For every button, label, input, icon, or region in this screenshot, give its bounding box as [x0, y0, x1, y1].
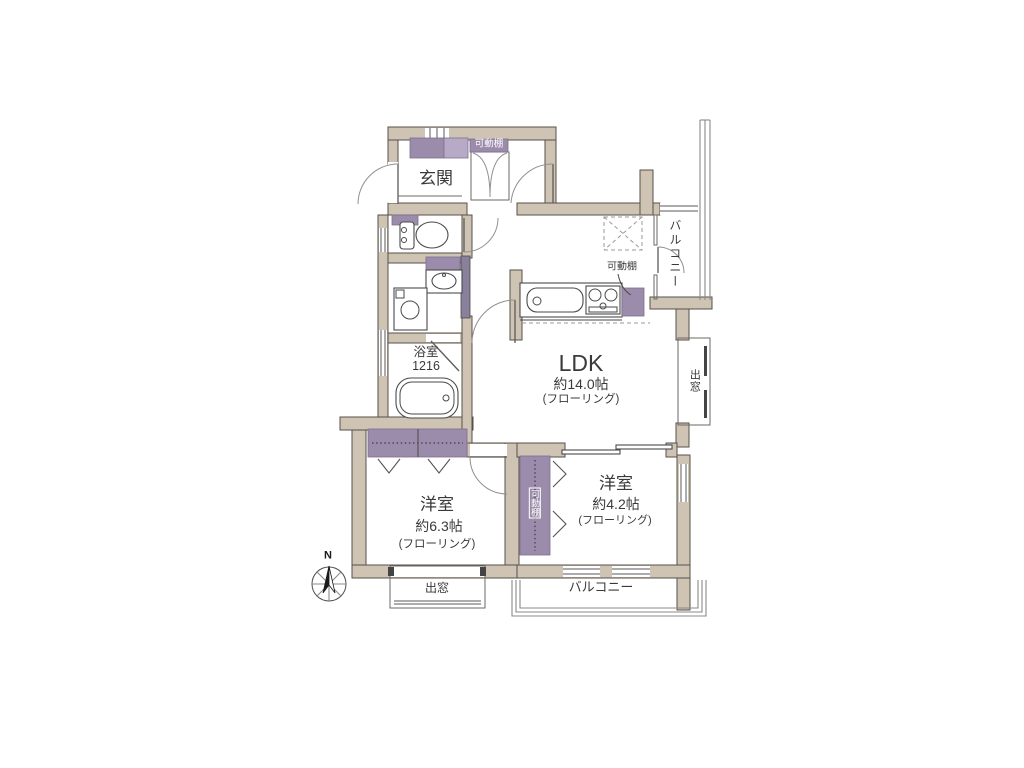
compass [312, 566, 346, 601]
ldk-floor: (フローリング) [543, 393, 620, 406]
bay-window-bottom-label: 出窓 [425, 582, 449, 596]
vanity [426, 257, 462, 293]
bedroom1-size: 約6.3帖 [415, 518, 462, 534]
closet-bedroom2 [520, 456, 566, 555]
closet-bedroom1 [368, 429, 467, 473]
closet-shelf-label: 可動棚 [529, 488, 541, 519]
bathroom-label: 浴室 [413, 345, 438, 359]
washing-machine [394, 288, 427, 330]
kitchen-sink [527, 288, 583, 312]
bedroom1-floor: (フローリング) [399, 538, 476, 551]
balcony-top-label: バルコニー [667, 219, 681, 289]
kitchen-shelf-label: 可動棚 [607, 261, 637, 273]
service-area-marker [604, 217, 642, 250]
floor-plan-drawing [0, 0, 1024, 768]
ldk-label: LDK [559, 350, 604, 376]
bathtub [396, 378, 458, 418]
stove [586, 286, 620, 314]
bedroom2-size: 約4.2帖 [592, 496, 639, 512]
kitchen-shelf [618, 274, 644, 316]
bedroom2-floor: (フローリング) [578, 515, 651, 528]
ldk-size: 約14.0帖 [553, 376, 608, 392]
bedroom1-label: 洋室 [420, 495, 454, 515]
balcony-bottom-label: バルコニー [569, 581, 634, 596]
balcony-top-railing [700, 120, 710, 300]
entrance-label: 玄関 [419, 169, 453, 189]
floor-plan: 玄関 可動棚 バルコニー 可動棚 LDK 約14.0帖 (フローリング) 出窓 … [0, 0, 1024, 768]
bathroom-size: 1216 [412, 359, 440, 373]
bedroom2-label: 洋室 [599, 474, 633, 494]
entrance-shelf-label: 可動棚 [475, 140, 504, 151]
entrance-shoe-cabinet [410, 138, 468, 158]
toilet [392, 215, 448, 249]
bay-window-right-label: 出窓 [688, 369, 701, 393]
compass-north-label: N [324, 550, 332, 563]
